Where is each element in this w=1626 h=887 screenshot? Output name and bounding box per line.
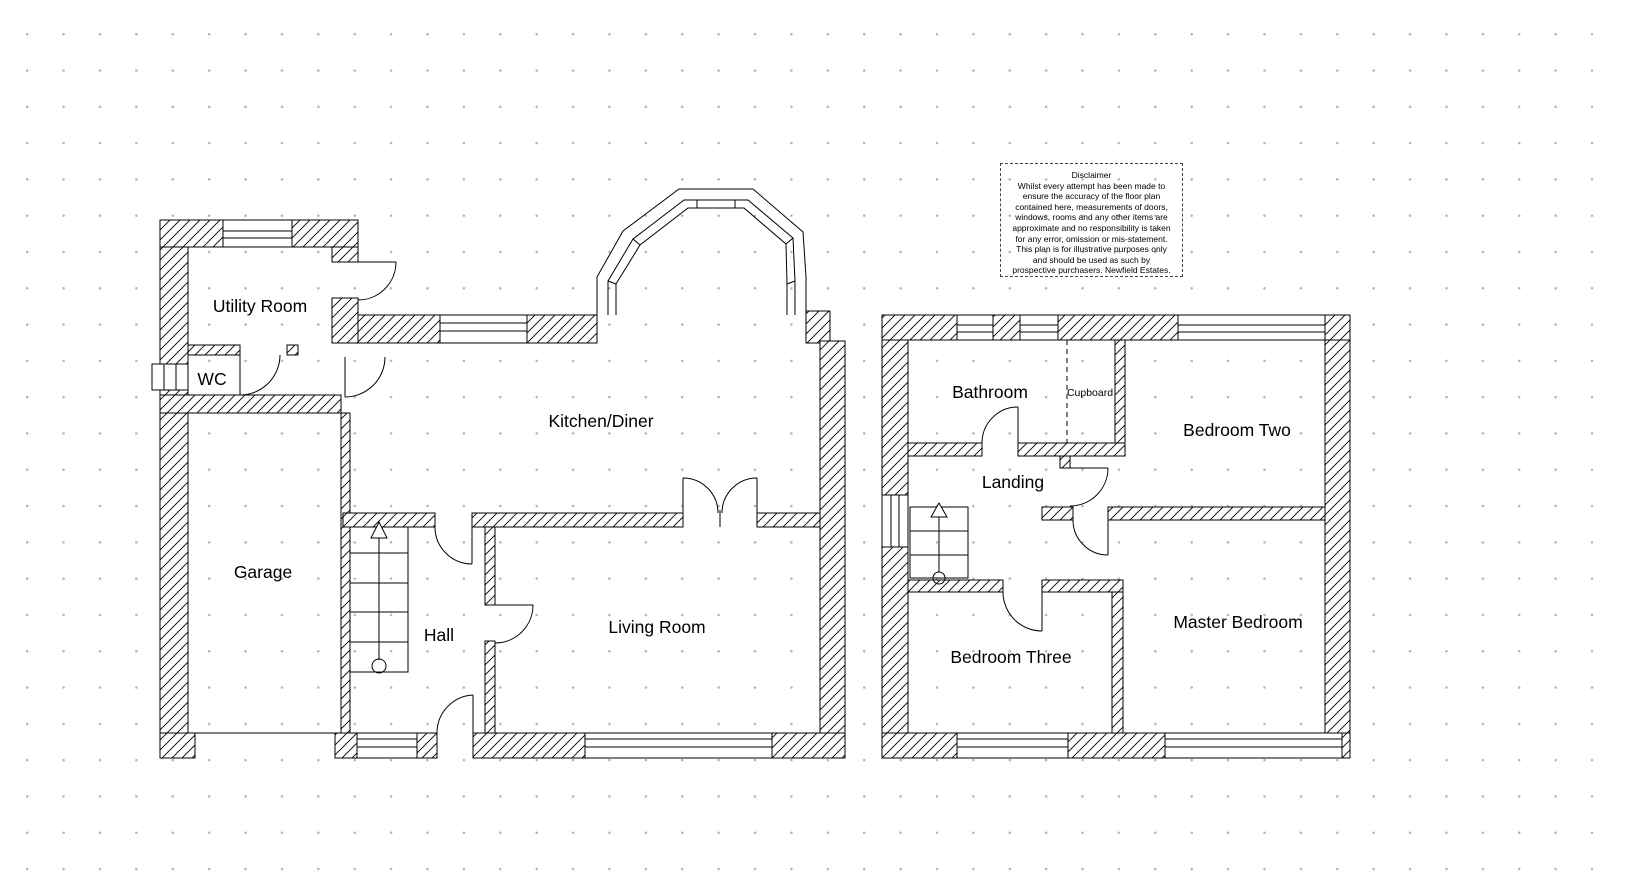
kitchen-living-double-door [683, 478, 757, 527]
room-label-living: Living Room [608, 617, 705, 637]
master-bedroom-door [1073, 520, 1108, 555]
bathroom-window-1 [957, 315, 993, 340]
bathroom-door [982, 407, 1018, 443]
disclaimer-line: windows, rooms and any other items are [1001, 212, 1182, 223]
room-label-wc: WC [197, 369, 226, 389]
landing-window [882, 495, 908, 547]
bedroom-two-door [1070, 468, 1108, 506]
room-label-landing: Landing [982, 472, 1044, 492]
kitchen-hall-door [435, 527, 472, 564]
bedroom-three-window [957, 733, 1068, 758]
wc-window [152, 364, 188, 390]
disclaimer-title: Disclaimer [1001, 170, 1182, 181]
room-label-hall: Hall [424, 625, 454, 645]
front-door [437, 695, 473, 733]
kitchen-corridor-door [345, 357, 385, 397]
hall-window [357, 733, 417, 758]
room-label-cupboard: Cupboard [1067, 387, 1113, 399]
kitchen-window [440, 315, 527, 343]
ground-floor-labels: Utility Room WC Garage Kitchen/Diner Hal… [197, 296, 705, 645]
bedroom-three-door [1003, 592, 1042, 631]
utility-rear-door [358, 262, 396, 300]
disclaimer-box: Disclaimer Whilst every attempt has been… [1000, 163, 1183, 277]
stairs-up-arrow [931, 503, 947, 517]
bathroom-window-2 [1020, 315, 1058, 340]
first-floor-staircase [910, 503, 968, 584]
room-label-bedroom-two: Bedroom Two [1183, 420, 1291, 440]
floor-plan-page: Utility Room WC Garage Kitchen/Diner Hal… [0, 0, 1626, 887]
disclaimer-line: approximate and no responsibility is tak… [1001, 223, 1182, 234]
room-label-garage: Garage [234, 562, 292, 582]
room-label-master-bedroom: Master Bedroom [1173, 612, 1302, 632]
disclaimer-line: prospective purchasers. Newfield Estates… [1001, 265, 1182, 276]
disclaimer-line: ensure the accuracy of the floor plan [1001, 191, 1182, 202]
disclaimer-line: and should be used as such by [1001, 255, 1182, 266]
living-room-window [585, 733, 772, 758]
hall-living-door [495, 605, 533, 643]
bay-window [597, 189, 806, 315]
room-label-kitchen: Kitchen/Diner [548, 411, 653, 431]
ground-floor-plan: Utility Room WC Garage Kitchen/Diner Hal… [152, 189, 845, 758]
floor-plan-canvas: Utility Room WC Garage Kitchen/Diner Hal… [0, 0, 1626, 887]
room-label-bedroom-three: Bedroom Three [950, 647, 1071, 667]
utility-window [223, 220, 292, 247]
disclaimer-line: contained here, measurements of doors, [1001, 202, 1182, 213]
wc-door [240, 355, 280, 395]
ground-floor-staircase [350, 522, 408, 673]
room-label-utility: Utility Room [213, 296, 307, 316]
room-label-bathroom: Bathroom [952, 382, 1028, 402]
first-floor-plan: Bathroom Cupboard Bedroom Two Landing Be… [882, 315, 1350, 758]
disclaimer-line: This plan is for illustrative purposes o… [1001, 244, 1182, 255]
master-bedroom-window [1165, 733, 1342, 758]
bedroom-two-window [1178, 315, 1325, 340]
first-floor-labels: Bathroom Cupboard Bedroom Two Landing Be… [950, 382, 1302, 667]
disclaimer-line: Whilst every attempt has been made to [1001, 181, 1182, 192]
disclaimer-line: for any error, omission or mis-statement… [1001, 234, 1182, 245]
